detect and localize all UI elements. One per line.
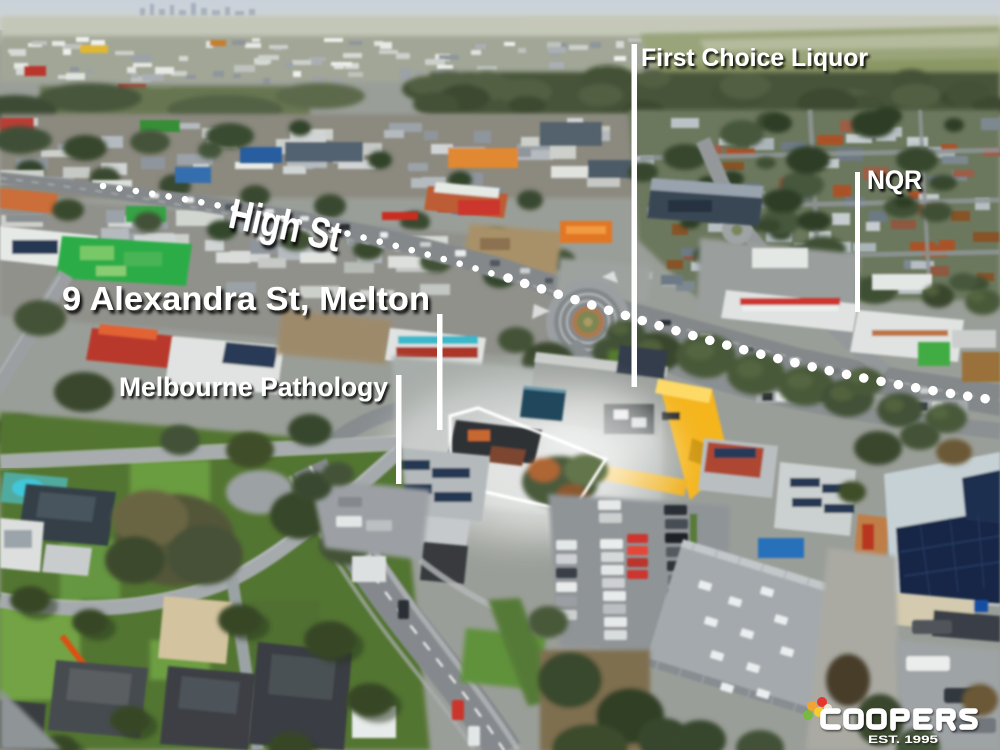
svg-text:Melbourne Pathology: Melbourne Pathology [119, 372, 388, 402]
svg-text:EST. 1995: EST. 1995 [868, 734, 938, 746]
svg-text:First Choice Liquor: First Choice Liquor [641, 44, 868, 72]
svg-text:NQR: NQR [867, 165, 922, 195]
svg-text:9 Alexandra St, Melton: 9 Alexandra St, Melton [62, 280, 430, 317]
